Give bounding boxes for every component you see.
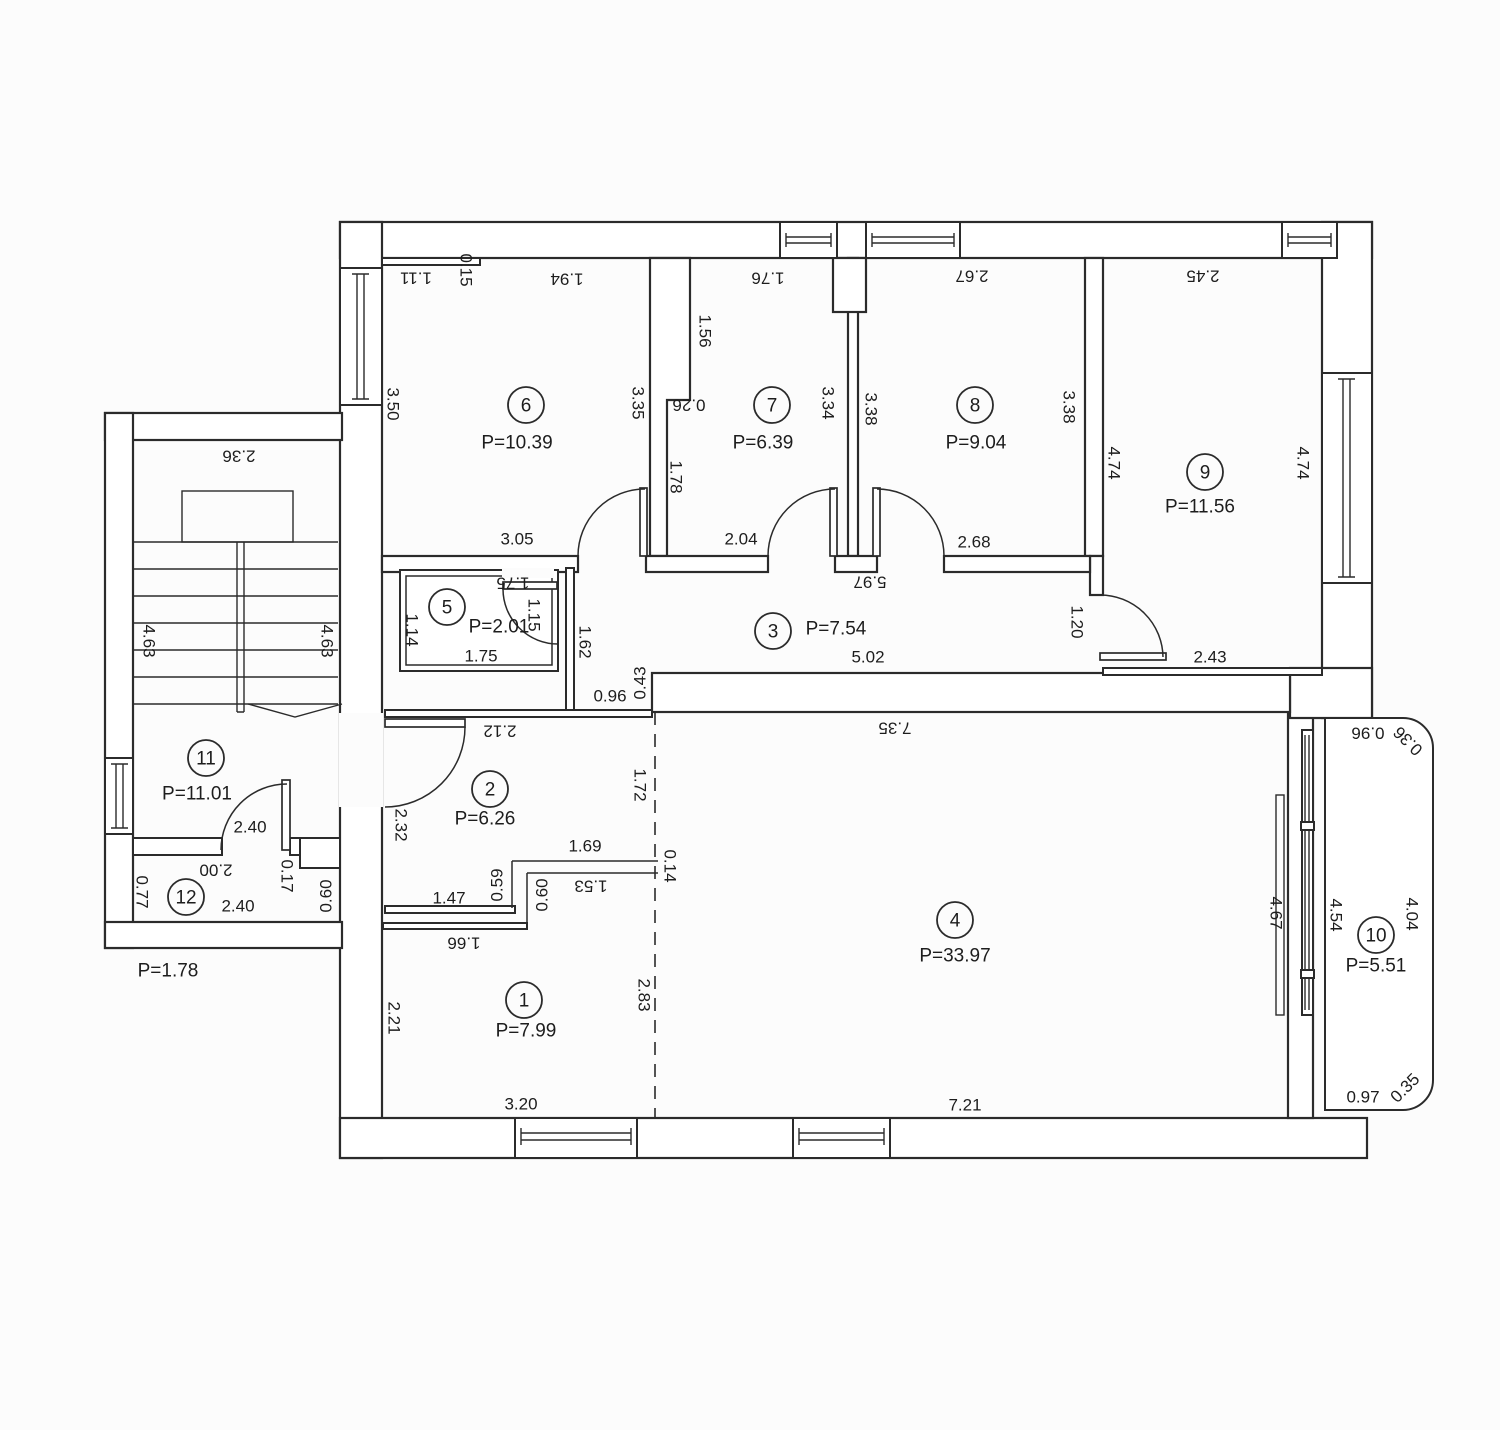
room-number: 4	[950, 911, 961, 932]
wall-room12-notch	[300, 838, 340, 868]
dimension-label: 4.63	[140, 624, 159, 657]
dimension-label: 4.54	[1327, 898, 1346, 931]
annex-wall-bottom	[105, 922, 342, 948]
dimension-label: 2.45	[1186, 267, 1219, 286]
room-number: 11	[196, 749, 216, 770]
dimension-label: 4.63	[318, 624, 337, 657]
dimension-label: 2.68	[957, 533, 990, 552]
window-annex-left	[105, 758, 133, 834]
room-area-label: P=6.39	[733, 433, 794, 454]
wall-hall-right	[1090, 556, 1103, 595]
dimension-label: 2.67	[955, 267, 988, 286]
room-area-label: P=10.39	[481, 433, 552, 454]
dimension-label: 0.60	[533, 878, 552, 911]
door-room6	[578, 488, 647, 556]
room-number: 6	[521, 396, 532, 417]
dimension-label: 1.75	[496, 574, 529, 593]
dimension-label: 1.78	[667, 460, 686, 493]
stair-arrow	[248, 704, 342, 717]
annex-wall-top	[105, 413, 342, 440]
dimension-label: 0.17	[278, 859, 297, 892]
dimension-label: 2.36	[222, 447, 255, 466]
dimension-label: 1.20	[1068, 605, 1087, 638]
dimension-label: 4.67	[1267, 896, 1286, 929]
dimension-label: 2.43	[1193, 648, 1226, 667]
room-number: 2	[485, 780, 496, 801]
floor-plan-page: 1.110.151.943.503.353.051.761.560.261.78…	[0, 0, 1500, 1430]
staircase	[133, 491, 342, 717]
wall-div-11-12-a	[133, 838, 222, 855]
window-room7-top	[780, 222, 837, 258]
window-room8-top	[866, 222, 960, 258]
dimension-label: 5.97	[853, 573, 886, 592]
room-area-label: P=33.97	[919, 946, 990, 967]
stair-steps	[133, 542, 338, 704]
room-area-label: P=11.01	[162, 784, 232, 805]
door-room7	[768, 488, 837, 556]
dimension-label: 1.11	[400, 269, 432, 288]
room-area-label: P=11.56	[1165, 497, 1235, 518]
wall-shaft-7-8	[833, 258, 866, 312]
dimension-label: 4.74	[1105, 446, 1124, 479]
dimension-label: 0.43	[631, 666, 650, 699]
window-room9-right	[1322, 373, 1372, 583]
dimension-label: 0.96	[1351, 724, 1384, 743]
stair-stringer	[237, 542, 244, 712]
wall-hall-left	[566, 568, 574, 710]
annex-wall-left	[105, 413, 133, 948]
room-number: 1	[519, 991, 530, 1012]
dimension-label: 1.76	[751, 269, 784, 288]
dimension-label: 3.20	[504, 1095, 537, 1114]
wall-div-8-9	[1085, 258, 1103, 556]
dimension-label: 0.60	[317, 879, 336, 912]
room-area-label: P=7.54	[806, 619, 867, 640]
wall-room2-top	[385, 710, 652, 717]
wall-room1-top	[383, 923, 527, 929]
dimension-label: 2.40	[233, 818, 266, 837]
wall-hall-d	[944, 556, 1090, 572]
dimension-label: 3.35	[629, 386, 648, 419]
window-bottom-room1	[515, 1118, 637, 1158]
dimension-label: 2.32	[392, 808, 411, 841]
room-number: 10	[1365, 926, 1386, 947]
dimension-label: 1.47	[432, 889, 465, 908]
room-area-label: P=6.26	[455, 809, 516, 830]
dimension-label: 0.14	[661, 849, 680, 882]
stair-landing	[182, 491, 293, 542]
window-room6-left	[340, 268, 382, 405]
dimension-label: 1.14	[403, 613, 422, 646]
dimension-label: 2.21	[385, 1001, 404, 1034]
dimension-label: 3.38	[862, 392, 881, 425]
dimension-label: 0.96	[593, 687, 626, 706]
room-number: 5	[442, 598, 453, 619]
outside-area-label: P=1.78	[138, 961, 199, 982]
dimension-label: 1.66	[447, 934, 480, 953]
room-area-label: P=5.51	[1346, 956, 1407, 977]
floor-plan-drawing: 1.110.151.943.503.353.051.761.560.261.78…	[0, 0, 1500, 1430]
dimension-label: 1.62	[576, 625, 595, 658]
wall-room9-bottom	[1103, 668, 1322, 675]
wall-top	[340, 222, 1372, 258]
wall-hall-room4	[652, 673, 1290, 712]
dimension-label: 2.83	[635, 978, 654, 1011]
dimension-label: 2.12	[483, 722, 516, 741]
room-number: 9	[1200, 463, 1211, 484]
wall-hall-c	[835, 556, 877, 572]
opening-room2-door	[339, 713, 383, 807]
dimension-label: 0.26	[672, 396, 705, 415]
dimension-label: 0.97	[1346, 1088, 1379, 1107]
room-area-label: P=2.01	[469, 617, 530, 638]
room-number: 8	[970, 396, 981, 417]
dimension-label: 3.34	[819, 386, 838, 419]
window-room9-top	[1282, 222, 1337, 258]
wall-div-11-12-b	[290, 838, 300, 855]
dimension-label: 1.75	[464, 647, 497, 666]
dimension-label: 3.50	[384, 387, 403, 420]
door-room9	[1100, 595, 1166, 660]
dimension-label: 2.04	[724, 530, 757, 549]
dimension-label: 3.38	[1060, 390, 1079, 423]
room-area-label: P=7.99	[496, 1021, 557, 1042]
dimension-label: 7.21	[948, 1096, 981, 1115]
room-area-label: P=9.04	[946, 433, 1007, 454]
window-balcony-door	[1301, 730, 1314, 1015]
door-room2	[385, 719, 465, 807]
dimension-label: 1.94	[550, 270, 583, 289]
dimension-label: 0.59	[488, 868, 507, 901]
room-number: 12	[175, 888, 196, 909]
wall-hall-b	[646, 556, 768, 572]
dimension-label: 2.40	[221, 897, 254, 916]
room-number: 3	[768, 622, 779, 643]
window-bottom-room4	[793, 1118, 890, 1158]
door-room8	[873, 488, 944, 556]
dimension-label: 0.77	[133, 875, 152, 908]
walls-layer	[105, 222, 1372, 1158]
dimension-label: 4.74	[1294, 446, 1313, 479]
dimension-label: 1.56	[696, 314, 715, 347]
dimension-label: 4.04	[1403, 897, 1422, 930]
dimension-label: 5.02	[851, 648, 884, 667]
dimension-label: 1.69	[568, 837, 601, 856]
dimension-label: 7.35	[878, 719, 911, 738]
dimension-label: 2.00	[199, 861, 232, 880]
dimension-label: 1.53	[574, 877, 607, 896]
dimension-label: 3.05	[500, 530, 533, 549]
dimension-label: 0.15	[457, 253, 476, 286]
room-number: 7	[767, 396, 778, 417]
dimension-label: 1.72	[631, 768, 650, 801]
